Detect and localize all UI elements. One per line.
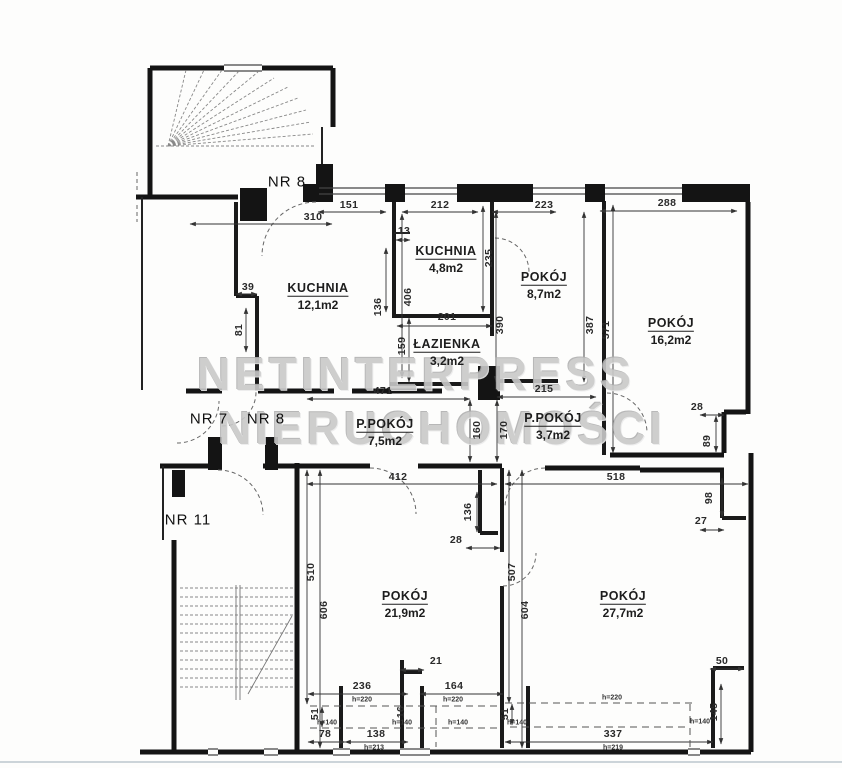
dim-label: 406 xyxy=(403,288,414,306)
dim-label: 390 xyxy=(495,316,506,334)
dim-label: 471 xyxy=(374,386,392,397)
dim-label: h=220 xyxy=(352,697,372,704)
door-arc xyxy=(495,238,529,272)
dim-label: 28 xyxy=(691,402,703,413)
dim-label: 138 xyxy=(367,729,385,740)
room-name: KUCHNIA xyxy=(287,282,348,297)
room-area: 27,7m2 xyxy=(600,606,646,618)
dim-label: 13 xyxy=(398,226,410,237)
dim-label: 136 xyxy=(373,298,384,316)
room-label: POKÓJ8,7m2 xyxy=(521,269,567,300)
dim-label: 507 xyxy=(507,563,518,581)
dimension-lines xyxy=(190,205,748,748)
unit-label: NR 8 xyxy=(268,175,306,190)
room-label: POKÓJ16,2m2 xyxy=(648,315,694,346)
dim-label: 337 xyxy=(604,729,622,740)
room-name: POKÓJ xyxy=(648,317,694,332)
room-name: P.POKÓJ xyxy=(356,418,413,433)
dim-label: h=219 xyxy=(603,745,623,752)
dim-label: 151 xyxy=(340,200,358,211)
room-area: 8,7m2 xyxy=(521,287,567,299)
staircase-bottom xyxy=(180,585,295,700)
room-area: 21,9m2 xyxy=(382,606,428,618)
unit-label: NR 8 xyxy=(247,412,285,427)
room-label: KUCHNIA12,1m2 xyxy=(287,280,348,311)
dim-label: 164 xyxy=(445,681,463,692)
dim-label: 288 xyxy=(658,198,676,209)
room-area: 7,5m2 xyxy=(356,434,413,446)
room-area: 3,7m2 xyxy=(524,428,581,440)
dim-label: 98 xyxy=(704,492,715,504)
room-name: ŁAZIENKA xyxy=(413,338,480,353)
room-area: 3,2m2 xyxy=(413,354,480,366)
dim-label: 145 xyxy=(709,703,720,721)
dim-label: 170 xyxy=(499,421,510,439)
dim-label: 223 xyxy=(535,200,553,211)
watermark-line-2: NIERUCHOMOŚCI xyxy=(218,401,666,455)
dim-label: 89 xyxy=(702,435,713,447)
dim-label: 160 xyxy=(472,421,483,439)
dim-label: 236 xyxy=(353,681,371,692)
dim-label: h=140 xyxy=(317,720,337,727)
room-name: POKÓJ xyxy=(382,590,428,605)
room-name: KUCHNIA xyxy=(415,245,476,260)
dim-label: h=140 xyxy=(690,719,710,726)
floor-plan-page: NETINTERPRESS NIERUCHOMOŚCI KUCHNIA12,1m… xyxy=(0,0,842,768)
room-name: POKÓJ xyxy=(521,271,567,286)
dim-label: 212 xyxy=(431,200,449,211)
staircase-top xyxy=(156,70,314,146)
room-label: P.POKÓJ7,5m2 xyxy=(356,416,413,447)
room-label: POKÓJ27,7m2 xyxy=(600,588,646,619)
dim-label: h=140 xyxy=(507,720,527,727)
room-label: P.POKÓJ3,7m2 xyxy=(524,410,581,441)
dim-label: 16 xyxy=(396,706,407,718)
dim-label: 21 xyxy=(430,656,442,667)
dim-label: 50 xyxy=(716,656,728,667)
dim-label: 51 xyxy=(500,708,511,720)
dim-label: 78 xyxy=(319,729,331,740)
dim-label: 412 xyxy=(389,472,407,483)
dim-label: 518 xyxy=(607,472,625,483)
dim-label: h=140 xyxy=(392,720,412,727)
dim-label: 51 xyxy=(310,708,321,720)
room-area: 12,1m2 xyxy=(287,298,348,310)
room-name: P.POKÓJ xyxy=(524,412,581,427)
dim-label: 604 xyxy=(520,601,531,619)
room-label: ŁAZIENKA3,2m2 xyxy=(413,336,480,367)
room-area: 4,8m2 xyxy=(415,261,476,273)
dim-label: 510 xyxy=(306,563,317,581)
dim-label: 136 xyxy=(463,503,474,521)
room-area: 16,2m2 xyxy=(648,333,694,345)
dim-label: 81 xyxy=(234,324,245,336)
dim-label: 27 xyxy=(695,516,707,527)
unit-label: NR 7 xyxy=(190,412,228,427)
room-label: KUCHNIA4,8m2 xyxy=(415,243,476,274)
dim-label: 571 xyxy=(601,321,612,339)
dim-label: 215 xyxy=(535,384,553,395)
room-name: POKÓJ xyxy=(600,590,646,605)
door-arc xyxy=(505,468,545,508)
dim-label: 201 xyxy=(438,312,456,323)
dim-label: 387 xyxy=(585,316,596,334)
dim-label: 310 xyxy=(304,212,322,223)
room-label: POKÓJ21,9m2 xyxy=(382,588,428,619)
dim-label: 159 xyxy=(397,337,408,355)
unit-label: NR 11 xyxy=(165,513,211,528)
dim-label: h=220 xyxy=(602,695,622,702)
dim-label: h=213 xyxy=(364,745,384,752)
dim-label: 28 xyxy=(450,535,462,546)
scan-edge-line xyxy=(0,761,842,763)
door-arc xyxy=(218,470,263,515)
dim-label: h=140 xyxy=(448,720,468,727)
dim-label: 606 xyxy=(319,601,330,619)
dim-label: h=220 xyxy=(443,697,463,704)
dim-label: 39 xyxy=(242,282,254,293)
dim-label: 235 xyxy=(484,249,495,267)
